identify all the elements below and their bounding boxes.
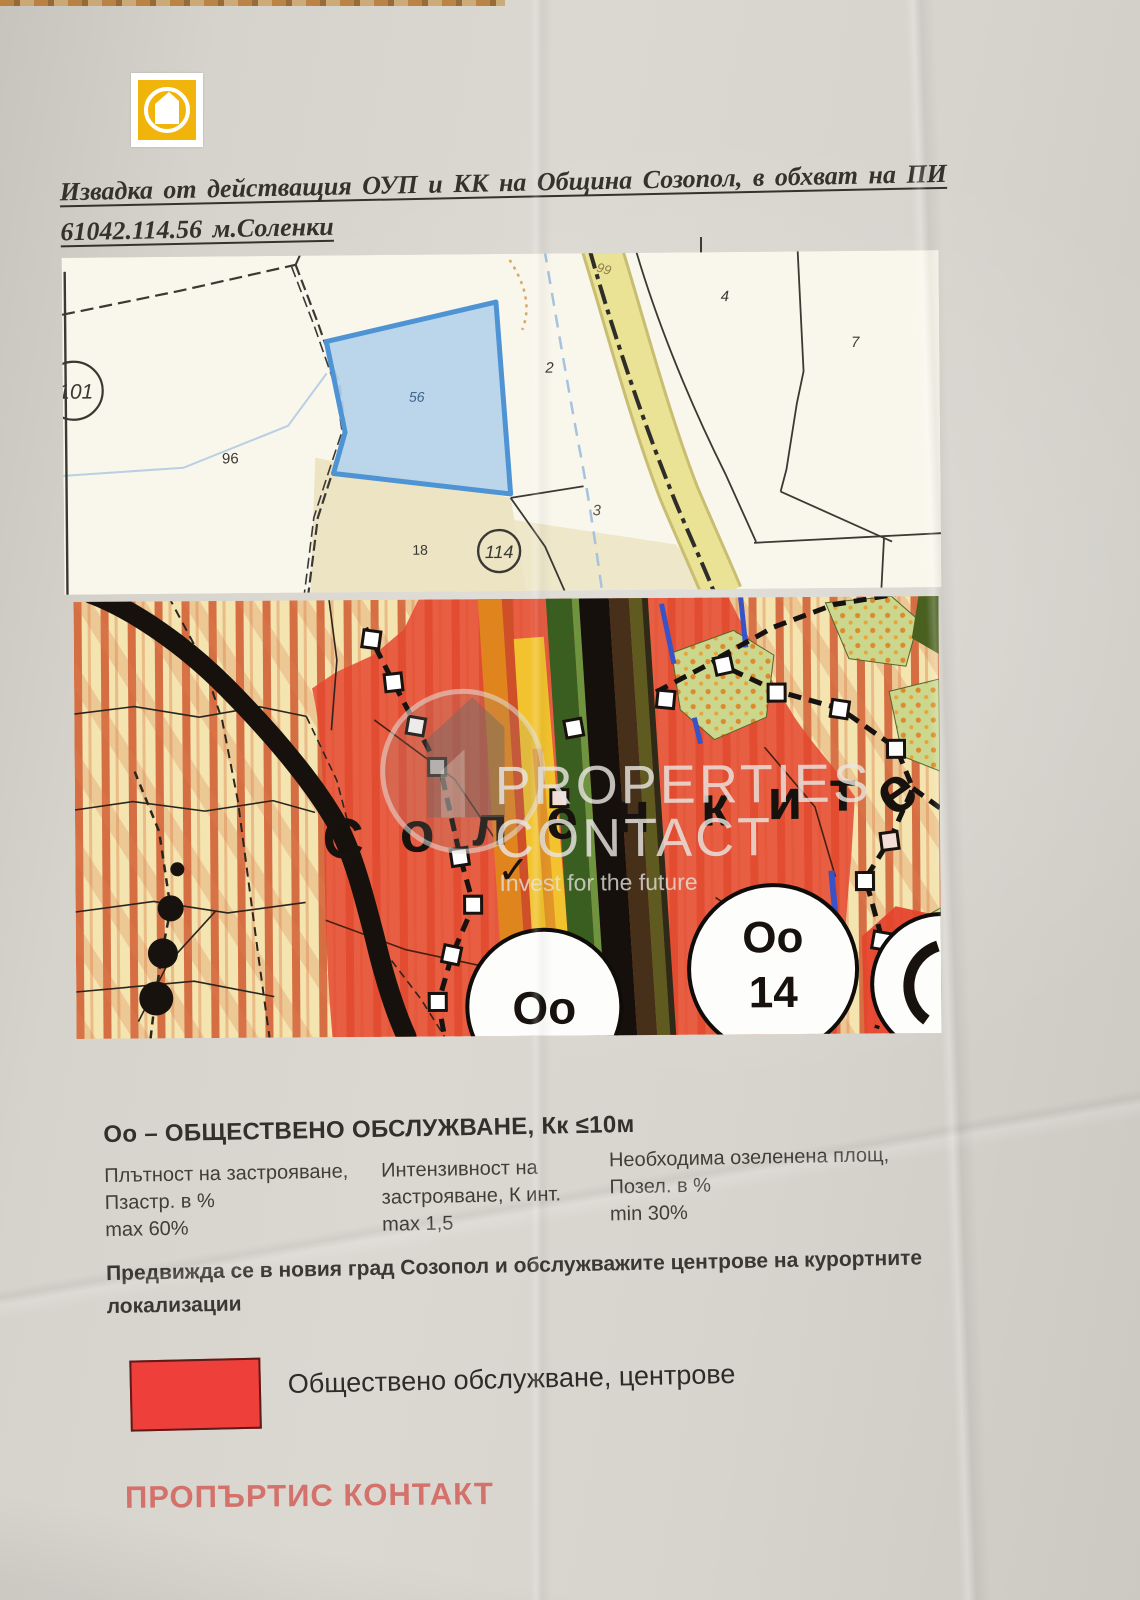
intensity-line1: Интензивност на (381, 1154, 561, 1184)
intensity-line2: застрояване, К инт. (381, 1181, 561, 1211)
label-101: 101 (62, 381, 94, 404)
column-greenery: Необходима озеленена площ, Позел. в % mi… (609, 1142, 891, 1228)
zoning-map-canvas: С о л е н к и т е ✓ Оо Оо 14 (73, 596, 941, 1039)
provision-note: Предвижда се в новия град Созопол и обсл… (106, 1239, 1057, 1323)
label-114: 114 (485, 542, 514, 562)
watermark-tagline: Invest for the future (499, 869, 697, 896)
label-56: 56 (409, 389, 425, 405)
zoning-regulations: Оо – ОБЩЕСТВЕНО ОБСЛУЖВАНЕ, Кк ≤10м Плът… (103, 1103, 1057, 1323)
column-density: Плътност на застрояване, Пзастр. в % max… (104, 1158, 350, 1244)
label-96: 96 (222, 450, 239, 467)
greenery-line1: Необходима озеленена площ, (609, 1142, 890, 1174)
scanned-document-page: Извадка от действащия ОУП и КК на Община… (0, 0, 1140, 1600)
watermark-text-line2: CONTACT (495, 807, 773, 869)
zoning-map: С о л е н к и т е ✓ Оо Оо 14 (73, 596, 941, 1039)
title-line-1: Извадка от действащия ОУП и КК на Община… (59, 154, 960, 213)
legend-red-swatch (129, 1358, 262, 1432)
cadastral-map: 101 96 56 2 3 99 4 7 18 114 (62, 249, 942, 596)
label-7: 7 (851, 334, 860, 351)
regulation-columns: Плътност на застрояване, Пзастр. в % max… (104, 1145, 1055, 1249)
greenery-value: min 30% (610, 1196, 891, 1228)
intensity-value: max 1,5 (382, 1208, 562, 1238)
zone-circle-oo-label: Оо (512, 982, 576, 1034)
density-line1: Плътност на застрояване, (104, 1158, 349, 1190)
label-4: 4 (721, 288, 729, 305)
zone-circle-oo14-line2: 14 (749, 968, 799, 1017)
area-letter: С (322, 807, 364, 871)
label-2: 2 (544, 360, 554, 377)
house-logo-icon (138, 80, 196, 140)
watermark-text-line1: PROPERTIES (495, 753, 873, 816)
title-line-2: 61042.114.56 м.Соленки (60, 207, 334, 253)
legend-label: Обществено обслужване, центрове (288, 1359, 736, 1400)
footer-brand-text: ПРОПЪРТИС КОНТАКТ (125, 1476, 494, 1516)
cadastral-map-canvas: 101 96 56 2 3 99 4 7 18 114 (62, 249, 942, 596)
zone-heading: Оо – ОБЩЕСТВЕНО ОБСЛУЖВАНЕ, Кк ≤10м (103, 1103, 1053, 1149)
zone-circle-oo14-line1: Оо (742, 913, 803, 962)
properties-contact-logo (131, 73, 203, 147)
document-title: Извадка от действащия ОУП и КК на Община… (59, 154, 960, 253)
photo-edge-artifact (0, 0, 505, 6)
map-legend: Обществено обслужване, центрове (129, 1339, 891, 1436)
density-value: max 60% (105, 1212, 350, 1244)
label-3: 3 (593, 502, 602, 519)
column-intensity: Интензивност на застрояване, К инт. max … (381, 1154, 562, 1238)
label-18: 18 (412, 542, 428, 558)
